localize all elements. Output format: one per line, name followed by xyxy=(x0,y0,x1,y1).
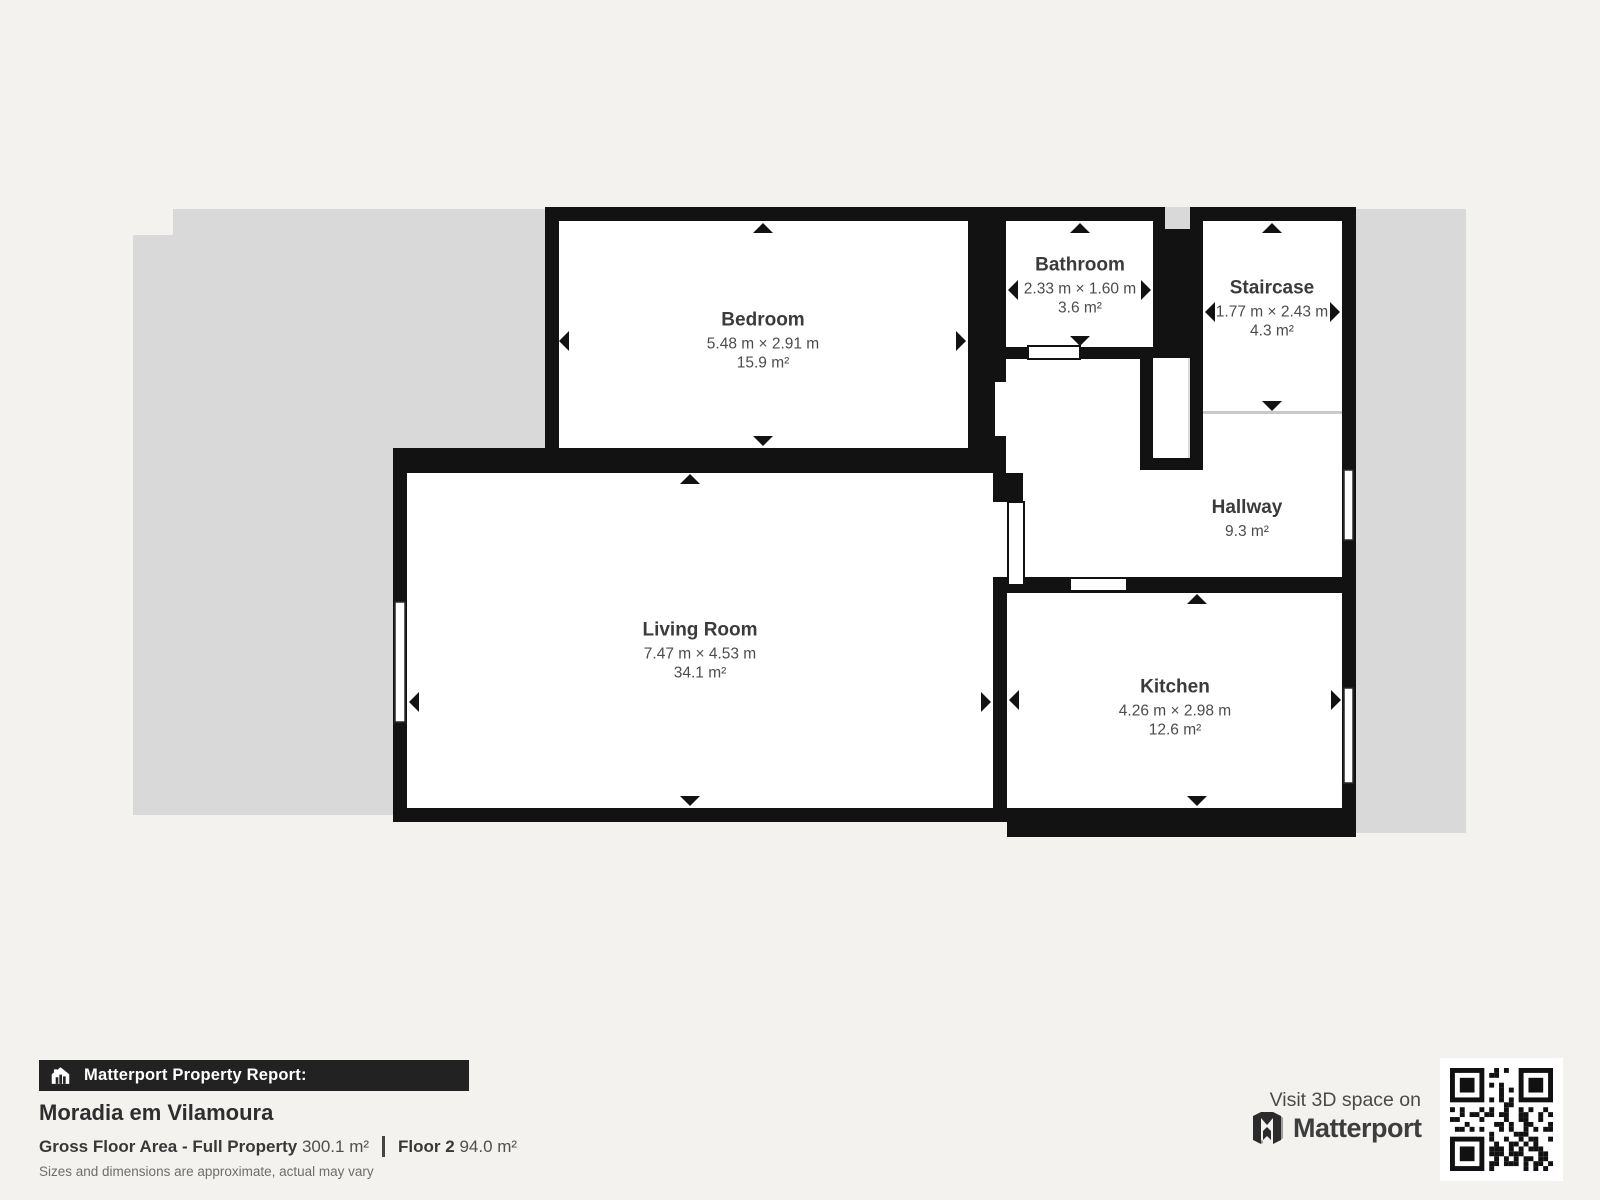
door-bedroom-slot xyxy=(995,382,1006,436)
floor-value: 94.0 m² xyxy=(459,1137,517,1156)
room-name: Bathroom xyxy=(1024,255,1136,277)
room-label-bathroom: Bathroom 2.33 m × 1.60 m 3.6 m² xyxy=(1024,255,1136,318)
room-name: Staircase xyxy=(1216,278,1328,300)
matterport-brand: Matterport xyxy=(1250,1111,1422,1145)
window-hallway xyxy=(1344,470,1353,540)
door-kitchen xyxy=(1070,578,1127,591)
report-bar-label: Matterport Property Report: xyxy=(84,1066,307,1085)
room-area: 15.9 m² xyxy=(707,354,819,373)
property-name: Moradia em Vilamoura xyxy=(39,1100,273,1126)
floor-label: Floor 2 xyxy=(398,1137,455,1156)
house-chart-icon xyxy=(50,1065,71,1086)
matterport-logo-icon xyxy=(1250,1111,1284,1145)
floor-stats: Gross Floor Area - Full Property 300.1 m… xyxy=(39,1136,517,1157)
room-area: 12.6 m² xyxy=(1119,721,1231,740)
room-area: 34.1 m² xyxy=(642,664,757,683)
window-kitchen xyxy=(1344,688,1353,783)
window-living-room xyxy=(395,602,405,722)
stat-divider xyxy=(382,1136,385,1157)
report-header-bar: Matterport Property Report: xyxy=(39,1060,469,1091)
room-dimensions: 2.33 m × 1.60 m xyxy=(1024,280,1136,299)
room-dimensions: 1.77 m × 2.43 m xyxy=(1216,303,1328,322)
floor-plan xyxy=(0,0,1600,1200)
room-dimensions: 7.47 m × 4.53 m xyxy=(642,645,757,664)
wall-notch xyxy=(1165,207,1190,229)
gross-floor-value: 300.1 m² xyxy=(302,1137,369,1156)
disclaimer-text: Sizes and dimensions are approximate, ac… xyxy=(39,1164,374,1179)
page: { "plan": { "rooms": [ {"name": "Bedroom… xyxy=(0,0,1600,1200)
room-area: 9.3 m² xyxy=(1212,522,1283,541)
visit-3d-label: Visit 3D space on xyxy=(1150,1089,1421,1112)
room-label-bedroom: Bedroom 5.48 m × 2.91 m 15.9 m² xyxy=(707,310,819,373)
room-dimensions: 5.48 m × 2.91 m xyxy=(707,335,819,354)
gross-floor-label: Gross Floor Area - Full Property xyxy=(39,1137,297,1156)
door-bathroom xyxy=(1028,346,1080,359)
room-area: 4.3 m² xyxy=(1216,322,1328,341)
room-label-hallway: Hallway 9.3 m² xyxy=(1212,497,1283,541)
room-label-staircase: Staircase 1.77 m × 2.43 m 4.3 m² xyxy=(1216,278,1328,341)
matterport-wordmark: Matterport xyxy=(1293,1113,1422,1144)
door-hallway xyxy=(1008,502,1024,585)
room-name: Hallway xyxy=(1212,497,1283,519)
room-name: Bedroom xyxy=(707,310,819,332)
room-label-kitchen: Kitchen 4.26 m × 2.98 m 12.6 m² xyxy=(1119,677,1231,740)
room-area: 3.6 m² xyxy=(1024,299,1136,318)
room-name: Kitchen xyxy=(1119,677,1231,699)
room-name: Living Room xyxy=(642,620,757,642)
staircase-open-edge xyxy=(1203,411,1342,414)
qr-code xyxy=(1440,1058,1563,1181)
room-dimensions: 4.26 m × 2.98 m xyxy=(1119,702,1231,721)
room-label-living-room: Living Room 7.47 m × 4.53 m 34.1 m² xyxy=(642,620,757,683)
